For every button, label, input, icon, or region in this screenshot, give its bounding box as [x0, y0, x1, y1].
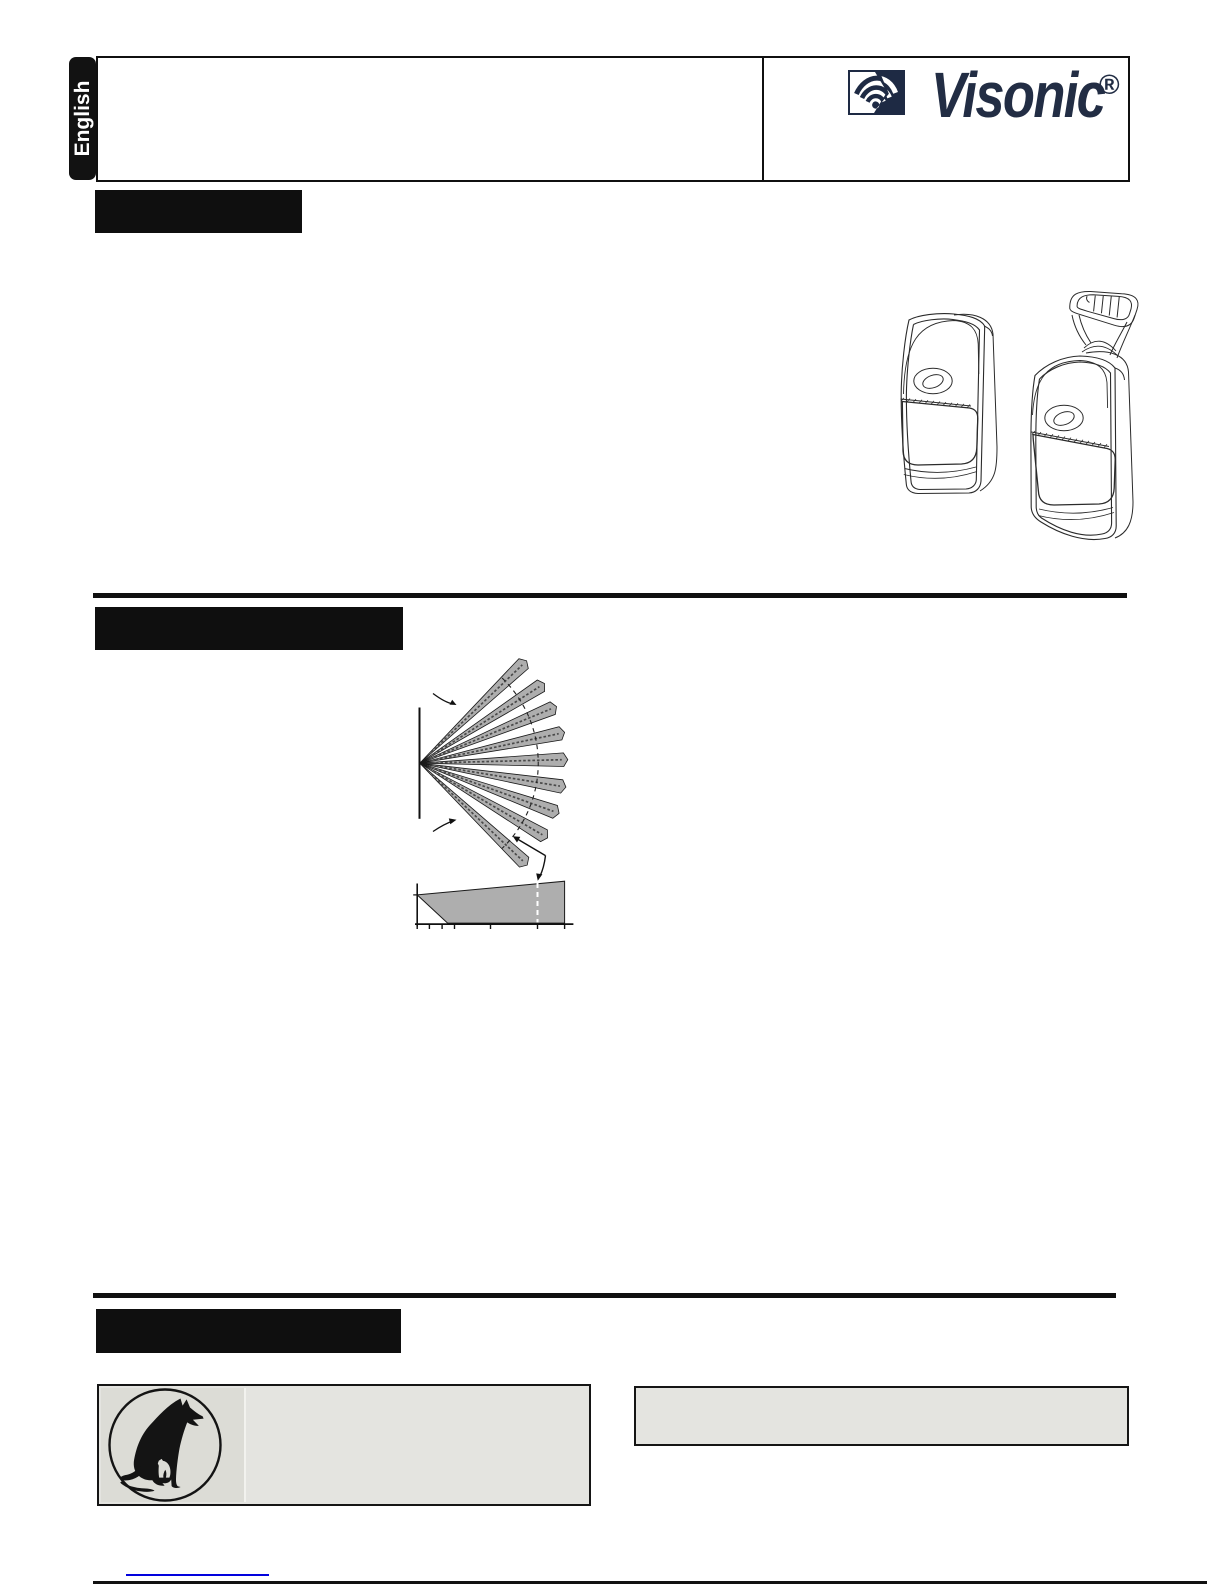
svg-text:English: English [71, 81, 94, 157]
